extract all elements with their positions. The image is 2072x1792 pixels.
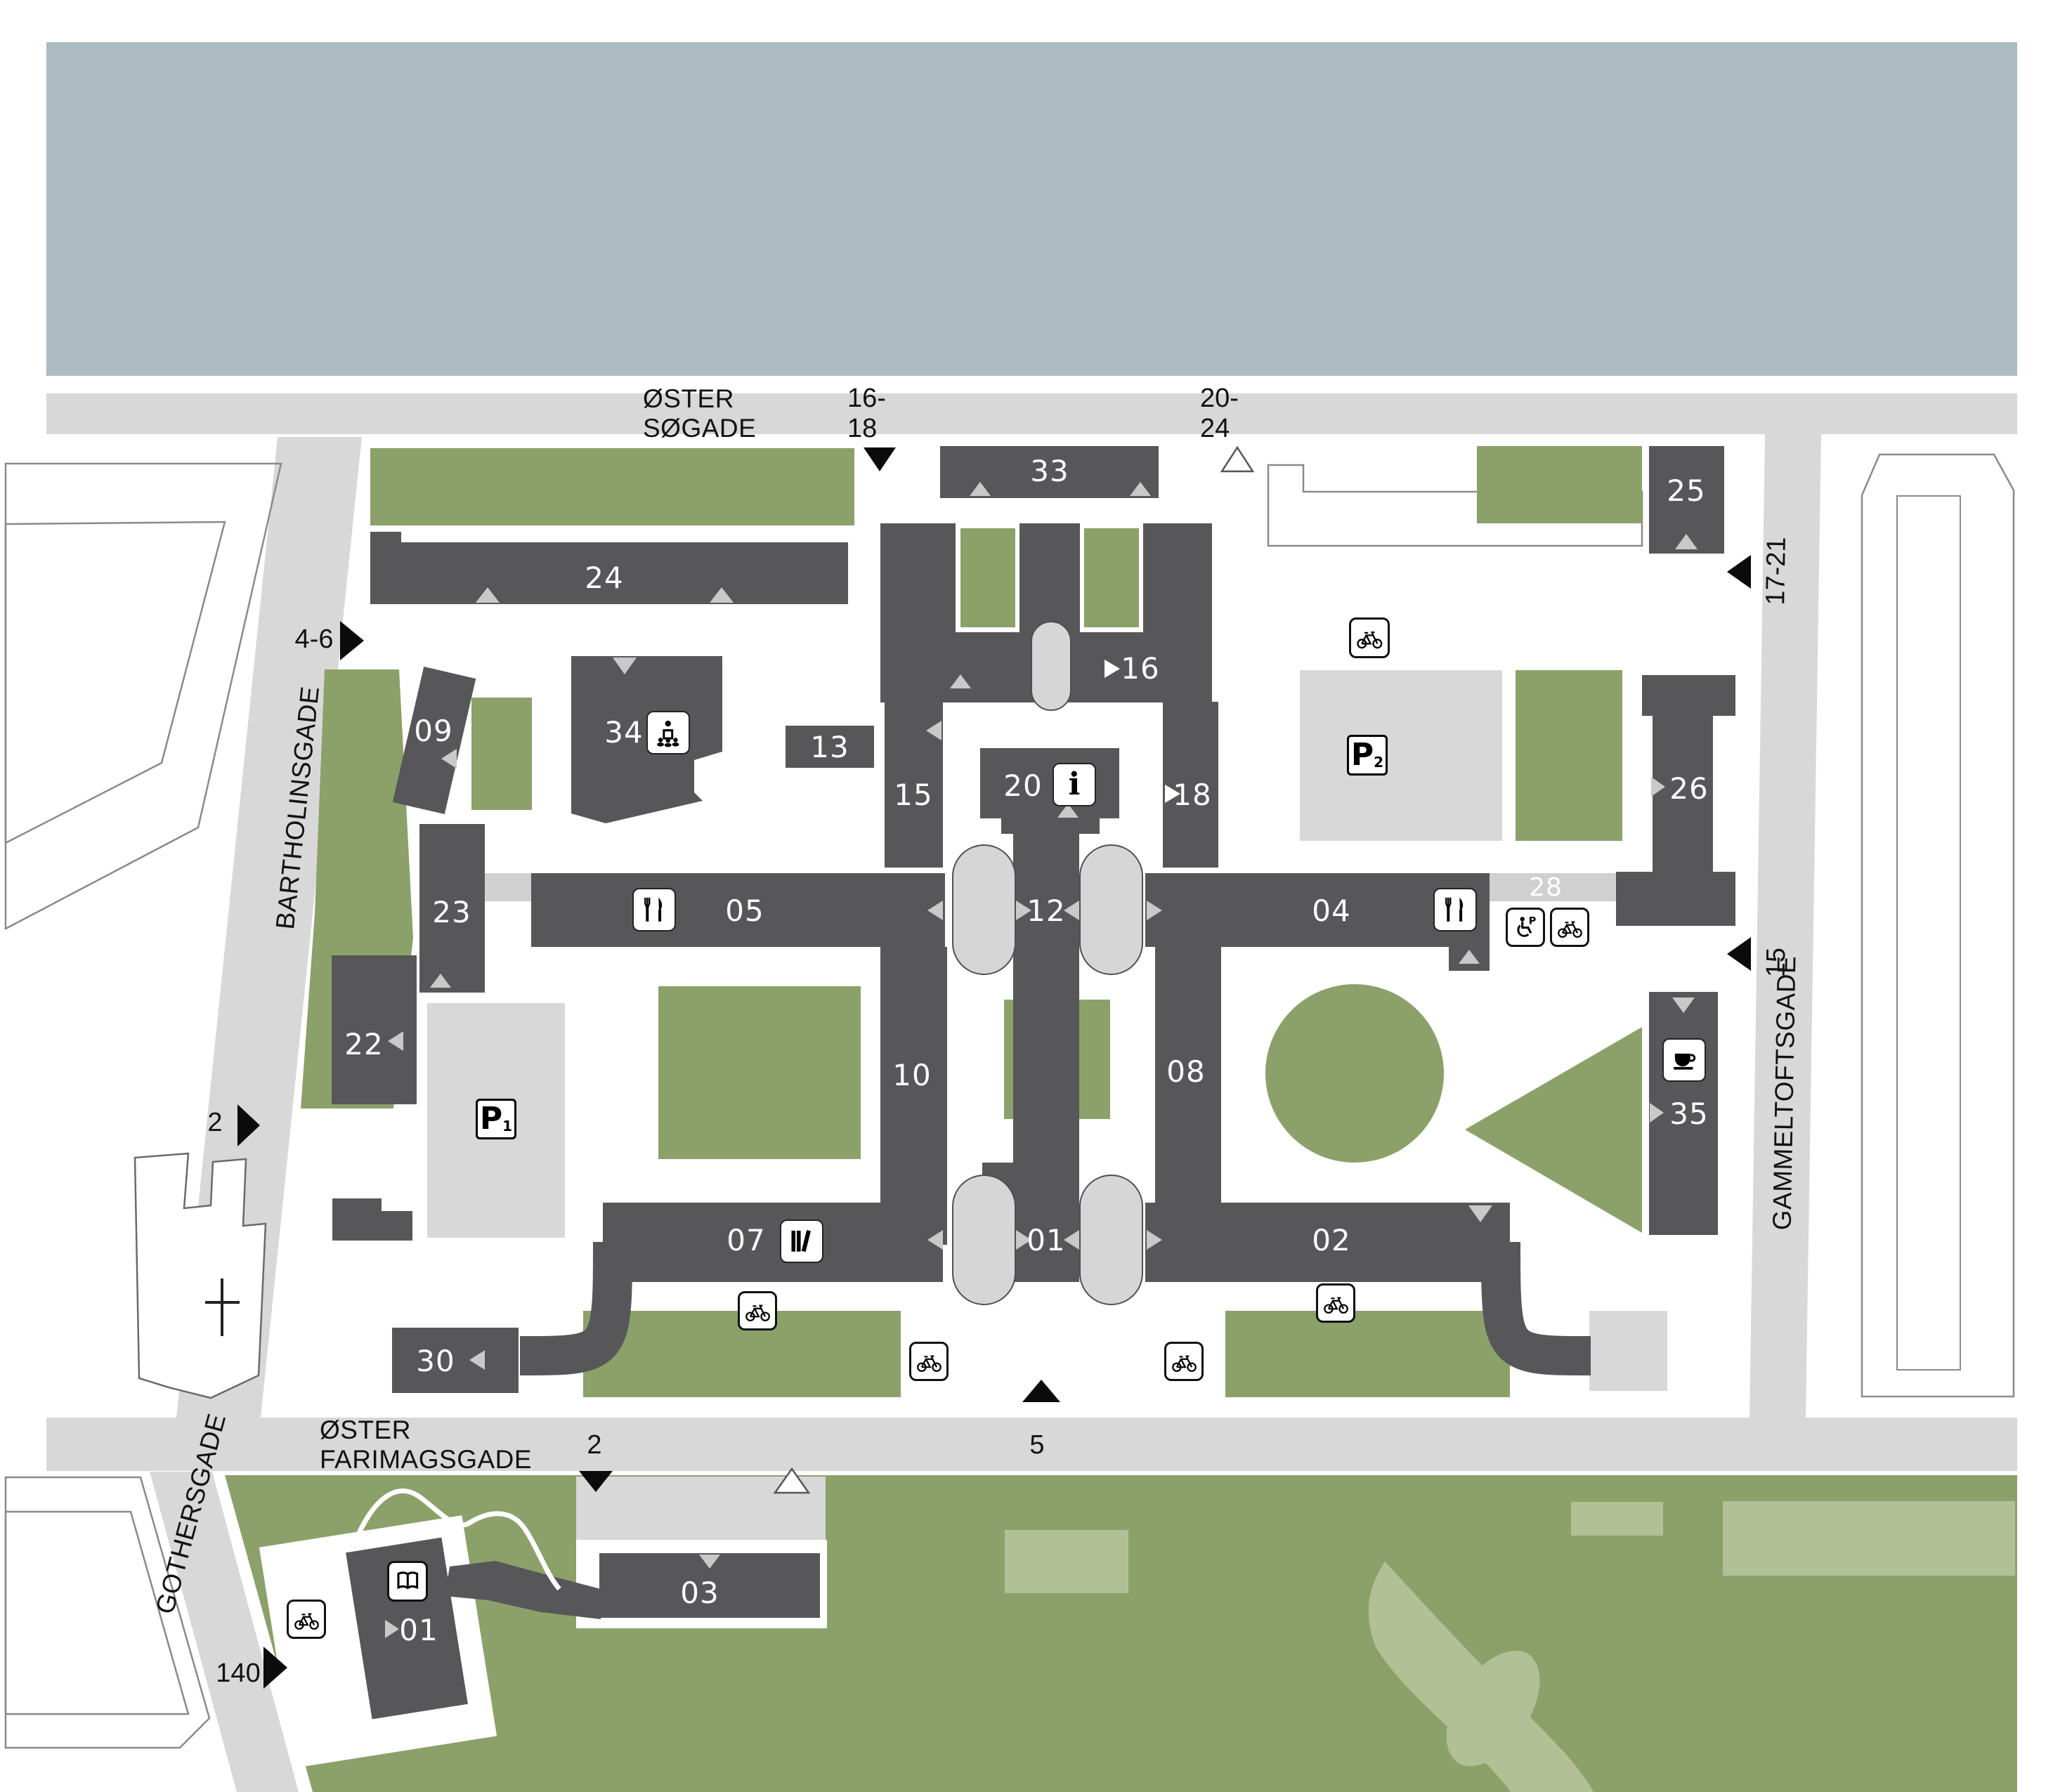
street-marker-triangle xyxy=(1022,1380,1060,1402)
building-10-label: 10 xyxy=(890,1059,934,1090)
building-16-label: 16 xyxy=(1116,653,1165,684)
entrance-triangle xyxy=(1672,998,1695,1013)
street-number-5: 5 xyxy=(1022,1430,1053,1460)
restaurant-icon xyxy=(632,888,676,931)
library-icon xyxy=(780,1219,823,1263)
building-25-label: 25 xyxy=(1658,475,1714,506)
entrance-triangle xyxy=(430,974,451,988)
building-30-label: 30 xyxy=(413,1345,458,1376)
building-03-label: 03 xyxy=(677,1577,722,1608)
entrance-triangle xyxy=(388,1031,403,1051)
street-number-2: 2 xyxy=(200,1107,230,1138)
entrance-triangle xyxy=(1650,1103,1664,1123)
entrance-triangle xyxy=(927,1230,943,1250)
street-marker-triangle xyxy=(263,1647,287,1689)
building-20-label: 20 xyxy=(1001,770,1045,801)
entrance-triangle xyxy=(1468,1205,1492,1222)
street-number-140: 140 xyxy=(209,1658,267,1689)
entrance-triangle xyxy=(950,674,971,688)
parking-p2-icon: P2 xyxy=(1347,735,1388,776)
building-08-label: 08 xyxy=(1164,1056,1208,1087)
street-number-2-farimagsgade: 2 xyxy=(579,1430,610,1460)
information-icon: i xyxy=(1053,763,1096,806)
building-04-label: 04 xyxy=(1308,895,1355,926)
reading-room-icon xyxy=(387,1561,428,1602)
walkway-connector xyxy=(445,1561,601,1619)
bike-parking-icon xyxy=(287,1600,326,1639)
street-marker-triangle-outline xyxy=(1220,445,1255,473)
building-01s-label: 01 xyxy=(399,1614,438,1645)
entrance-triangle xyxy=(385,1620,399,1638)
entrance-triangle xyxy=(476,587,500,603)
entrance-triangle xyxy=(970,482,991,496)
building-34-label: 34 xyxy=(603,717,645,747)
building-28-label: 28 xyxy=(1519,873,1572,901)
entrance-triangle xyxy=(1147,1230,1162,1250)
street-marker-triangle xyxy=(237,1104,260,1146)
street-marker-triangle xyxy=(1727,937,1751,971)
building-07-label: 07 xyxy=(724,1224,769,1255)
building-23-label: 23 xyxy=(429,896,474,927)
parking-p1-icon: P1 xyxy=(476,1099,516,1139)
building-24-label: 24 xyxy=(576,562,632,593)
building-22-label: 22 xyxy=(341,1028,386,1059)
entrance-triangle xyxy=(699,1555,720,1569)
entrance-triangle xyxy=(926,721,941,740)
street-marker-triangle xyxy=(579,1471,613,1492)
street-number-15: 15 xyxy=(1761,920,1791,1005)
bike-parking-icon xyxy=(1164,1342,1204,1381)
street-marker-triangle xyxy=(340,621,364,660)
campus-map: i P1 P2 24 33 25 16 09 34 13 15 20 18 26… xyxy=(0,0,2072,1792)
curved-wing xyxy=(1501,1242,1591,1356)
street-number-20-24: 20-24 xyxy=(1200,399,1268,429)
street-marker-triangle xyxy=(1727,555,1751,589)
building-02-label: 02 xyxy=(1308,1224,1355,1255)
building-05-label: 05 xyxy=(722,895,767,926)
restaurant-icon xyxy=(1433,888,1477,931)
entrance-triangle xyxy=(927,901,943,920)
bike-parking-icon xyxy=(1550,908,1589,947)
disabled-parking-icon xyxy=(1506,908,1545,947)
curved-wing xyxy=(520,1242,613,1356)
building-12-label: 12 xyxy=(1022,895,1070,926)
entrance-triangle xyxy=(1459,950,1480,964)
bike-parking-icon xyxy=(1349,617,1390,658)
street-number-4-6: 4-6 xyxy=(289,624,339,655)
street-marker-triangle xyxy=(864,447,896,471)
building-15-label: 15 xyxy=(891,779,936,810)
entrance-triangle xyxy=(441,749,457,769)
entrance-triangle xyxy=(469,1350,485,1370)
entrance-triangle xyxy=(1651,777,1665,797)
bike-parking-icon xyxy=(909,1342,949,1381)
entrance-triangle xyxy=(710,587,734,603)
street-number-17-21: 17-21 xyxy=(1761,529,1791,614)
street-oster-sogade: ØSTER SØGADE xyxy=(643,399,847,429)
street-number-16-18: 16-18 xyxy=(847,399,915,429)
building-18-label: 18 xyxy=(1170,779,1215,810)
building-13-label: 13 xyxy=(807,731,853,762)
entrance-triangle xyxy=(613,658,637,674)
street-oster-farimagsgade: ØSTER FARIMAGSGADE xyxy=(320,1430,573,1460)
building-26-label: 26 xyxy=(1667,773,1712,804)
entrance-triangle xyxy=(1675,534,1698,549)
building-09-label: 09 xyxy=(414,715,453,746)
entrance-triangle xyxy=(1147,901,1162,920)
building-01-label: 01 xyxy=(1023,1224,1069,1255)
building-33-label: 33 xyxy=(1022,455,1078,486)
street-marker-triangle-outline xyxy=(773,1467,811,1495)
building-35-label: 35 xyxy=(1667,1098,1712,1129)
bike-parking-icon xyxy=(738,1291,777,1330)
entrance-triangle xyxy=(1130,482,1151,496)
bike-parking-icon xyxy=(1316,1283,1355,1323)
lecture-hall-icon xyxy=(646,711,690,754)
cafe-icon xyxy=(1662,1038,1706,1082)
